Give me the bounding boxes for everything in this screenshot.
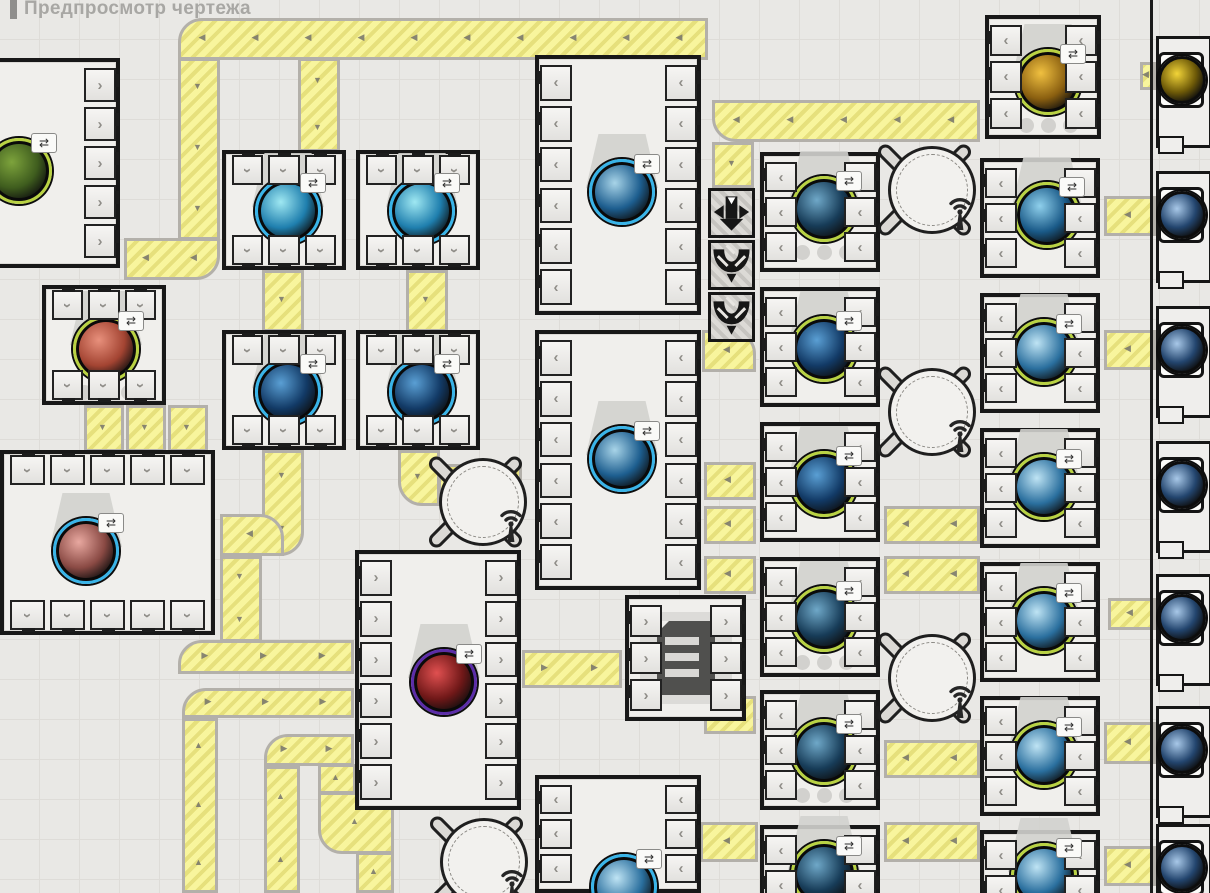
slot-tick [762, 776, 766, 789]
io-slot: ‹ [985, 642, 1017, 672]
belt-arrow-icon: ◀ [517, 33, 524, 42]
slot-tick [875, 338, 879, 351]
conveyor-belt: ◀ [704, 556, 756, 594]
slot-tick [448, 263, 461, 267]
belt-arrow-icon: ▶ [319, 697, 326, 706]
chevron-l-icon: ‹ [679, 432, 684, 447]
dot [795, 245, 810, 260]
chevron-l-icon: ‹ [554, 432, 559, 447]
chevron-l-icon: ‹ [779, 305, 784, 320]
dock-connector [1158, 406, 1184, 424]
belt-arrow-icon: ◀ [464, 33, 471, 42]
chevron-r-icon: › [644, 614, 649, 629]
io-slot: ‹ [1064, 473, 1096, 503]
chevron-r-icon: › [644, 651, 649, 666]
belt-arrow-icon: ◀ [733, 115, 740, 124]
chevron-d-icon: › [96, 383, 111, 388]
dot [817, 655, 832, 670]
slot-tick [982, 578, 986, 591]
building[interactable]: ⇄›››››››››››› [355, 550, 521, 810]
chevron-l-icon: ‹ [858, 610, 863, 625]
chevron-r-icon: › [98, 117, 103, 132]
slot-tick [627, 685, 631, 698]
io-slot: ‹ [765, 332, 797, 362]
belt-arrow-icon: ▲ [276, 792, 285, 801]
item-icon-blue-tower [1158, 594, 1206, 642]
slot-tick [762, 438, 766, 451]
belt-arrow-icon: ◀ [1124, 860, 1131, 869]
io-slot: ‹ [985, 168, 1017, 198]
blueprint-preview-canvas[interactable]: Предпросмотр чертежа ◀◀◀◀◀◀◀◀◀◀▼▼▼◀◀▼▼▼▼… [0, 0, 1210, 893]
radar-station[interactable] [882, 140, 982, 240]
io-slot: › [485, 723, 517, 759]
slot-tick [537, 550, 541, 563]
radar-station[interactable] [434, 812, 534, 893]
slot-tick [696, 469, 700, 482]
item-icon-blue-tower [1158, 844, 1206, 892]
io-slot: ‹ [765, 197, 797, 227]
swap-badge-icon: ⇄ [636, 849, 662, 869]
building[interactable]: ⇄‹‹‹‹‹‹ [535, 775, 701, 893]
io-slot: ‹ [844, 735, 876, 765]
conveyor-belt: ◀ [1140, 62, 1156, 90]
slot-tick [62, 453, 75, 457]
building[interactable]: ›››››› [625, 595, 746, 721]
swap-badge-icon: ⇄ [634, 421, 660, 441]
io-slot: › [50, 600, 85, 630]
slot-tick [762, 303, 766, 316]
io-slot: ‹ [665, 819, 697, 848]
radar-station[interactable] [882, 628, 982, 728]
io-slot: › [439, 235, 470, 265]
io-slot: › [402, 335, 433, 365]
chevron-l-icon: ‹ [679, 75, 684, 90]
radar-station[interactable] [433, 452, 533, 552]
io-slot: › [268, 415, 299, 445]
edge-dock-rail [1150, 0, 1153, 893]
io-slot: ‹ [990, 98, 1022, 129]
io-slot: › [710, 679, 742, 711]
slot-tick [314, 263, 327, 267]
belt-arrow-icon: ◀ [358, 33, 365, 42]
conveyor-belt: ▼ [168, 405, 208, 452]
chevron-r-icon: › [724, 651, 729, 666]
io-slot: › [52, 370, 83, 400]
io-slot: ‹ [540, 188, 572, 224]
chevron-l-icon: ‹ [679, 157, 684, 172]
chevron-l-icon: ‹ [779, 510, 784, 525]
chevron-l-icon: ‹ [779, 375, 784, 390]
chevron-l-icon: ‹ [1078, 246, 1083, 261]
chevron-d-icon: › [410, 168, 425, 173]
conveyor-belt: ◀◀ [884, 556, 980, 594]
io-slot: ‹ [765, 162, 797, 192]
io-slot: ‹ [844, 637, 876, 667]
io-slot: › [630, 642, 662, 674]
chevron-l-icon: ‹ [858, 340, 863, 355]
belt-arrow-icon: ▶ [201, 651, 208, 660]
conveyor-belt: ◀ [704, 462, 756, 500]
conveyor-belt: ▲▲▲ [182, 718, 218, 893]
io-slot: › [366, 235, 397, 265]
io-slot: ‹ [765, 735, 797, 765]
io-slot: › [90, 455, 125, 485]
slot-tick [314, 153, 327, 157]
io-slot: ‹ [665, 422, 697, 458]
belt-arrow-icon: ▶ [319, 651, 326, 660]
conveyor-belt: ▼▼ [220, 556, 262, 642]
swap-badge-icon: ⇄ [1056, 838, 1082, 858]
chevron-l-icon: ‹ [1078, 346, 1083, 361]
slot-tick [762, 203, 766, 216]
io-slot: ‹ [985, 840, 1017, 870]
building[interactable]: ⇄›››››› [356, 330, 480, 450]
io-slot: ‹ [665, 228, 697, 264]
building[interactable]: ⇄‹‹‹‹‹‹ [760, 825, 880, 893]
io-slot: › [402, 155, 433, 185]
io-slot: › [360, 601, 392, 637]
slot-tick [696, 275, 700, 288]
belt-arrow-icon: ▶ [205, 697, 212, 706]
chevron-d-icon: › [276, 348, 291, 353]
slot-tick [982, 747, 986, 760]
building[interactable]: ⇄‹‹‹‹‹‹ [980, 293, 1100, 413]
slot-tick [278, 443, 291, 447]
chevron-l-icon: ‹ [679, 198, 684, 213]
slot-tick [982, 174, 986, 187]
building[interactable]: ⇄‹‹‹‹‹‹ [980, 562, 1100, 682]
io-slot: ‹ [765, 567, 797, 597]
building[interactable]: ⇄‹‹‹‹‹‹ [760, 287, 880, 407]
io-slot: ‹ [844, 367, 876, 397]
chevron-l-icon: ‹ [679, 792, 684, 807]
io-slot: ‹ [540, 463, 572, 499]
chevron-l-icon: ‹ [999, 784, 1004, 799]
building[interactable]: ⇄‹‹‹‹‹‹ [980, 830, 1100, 893]
belt-arrow-icon: ▲ [194, 741, 203, 750]
slot-tick [376, 263, 389, 267]
chevron-l-icon: ‹ [679, 555, 684, 570]
chevron-l-icon: ‹ [679, 350, 684, 365]
io-slot: ‹ [665, 188, 697, 224]
conveyor-belt: ▼ [712, 142, 754, 188]
swap-badge-icon: ⇄ [300, 354, 326, 374]
belt-arrow-icon: ▼ [313, 123, 322, 132]
building[interactable]: ⇄‹‹‹‹‹‹ [980, 696, 1100, 816]
chevron-l-icon: ‹ [999, 615, 1004, 630]
io-slot: ‹ [990, 25, 1022, 56]
io-slot: ‹ [985, 572, 1017, 602]
chevron-l-icon: ‹ [779, 843, 784, 858]
slot-tick [982, 846, 986, 859]
slot-tick [762, 706, 766, 719]
building[interactable]: ⇄›››››› [222, 150, 346, 270]
slot-tick [115, 113, 119, 126]
chevron-l-icon: ‹ [1004, 106, 1009, 121]
io-slot: ‹ [765, 700, 797, 730]
chevron-l-icon: ‹ [679, 391, 684, 406]
io-slot: ‹ [765, 835, 797, 865]
io-slot: › [170, 455, 205, 485]
swap-badge-icon: ⇄ [836, 311, 862, 331]
chevron-l-icon: ‹ [779, 610, 784, 625]
io-slot: › [125, 370, 156, 400]
slot-tick [134, 288, 147, 292]
slot-tick [357, 729, 361, 742]
building[interactable]: ⇄‹‹‹‹‹‹ [760, 690, 880, 810]
conveyor-belt: ◀ [220, 514, 284, 556]
belt-arrow-icon: ◀ [902, 836, 909, 845]
swap-badge-icon: ⇄ [1056, 314, 1082, 334]
chevron-l-icon: ‹ [1078, 883, 1083, 893]
io-slot: › [170, 600, 205, 630]
slot-tick [242, 153, 255, 157]
io-slot: ‹ [985, 238, 1017, 268]
chevron-l-icon: ‹ [999, 346, 1004, 361]
tunnel-tile[interactable] [708, 292, 755, 342]
belt-arrow-icon: ▼ [727, 159, 736, 168]
belt-arrow-icon: ▼ [193, 204, 202, 213]
building[interactable]: ⇄‹‹‹‹‹‹ [760, 152, 880, 272]
chevron-d-icon: › [20, 613, 35, 618]
slot-tick [115, 230, 119, 243]
chevron-l-icon: ‹ [999, 381, 1004, 396]
io-slot: ‹ [665, 463, 697, 499]
building[interactable]: ⇄‹‹‹‹‹‹ [760, 557, 880, 677]
io-slot: ‹ [844, 602, 876, 632]
conveyor-belt: ◀ [1104, 722, 1156, 764]
slot-tick [762, 643, 766, 656]
slot-tick [696, 428, 700, 441]
io-slot: › [10, 600, 45, 630]
slot-tick [537, 112, 541, 125]
io-slot: › [366, 415, 397, 445]
chevron-l-icon: ‹ [999, 516, 1004, 531]
chevron-r-icon: › [724, 688, 729, 703]
conveyor-belt: ▼▼ [298, 58, 340, 152]
slot-tick [875, 608, 879, 621]
chevron-d-icon: › [96, 303, 111, 308]
slot-tick [242, 263, 255, 267]
chevron-d-icon: › [374, 428, 389, 433]
slot-tick [982, 712, 986, 725]
slot-tick [696, 71, 700, 84]
slot-tick [448, 443, 461, 447]
chevron-r-icon: › [644, 688, 649, 703]
chevron-d-icon: › [374, 168, 389, 173]
belt-arrow-icon: ▲ [350, 817, 359, 826]
title-accent-bar [10, 0, 17, 19]
conveyor-belt: ▶▶▶ [178, 640, 354, 674]
splitter-tile[interactable] [708, 188, 755, 238]
chevron-r-icon: › [499, 693, 504, 708]
chevron-l-icon: ‹ [1004, 33, 1009, 48]
slot-tick [376, 443, 389, 447]
radar-station[interactable] [882, 362, 982, 462]
io-slot: ‹ [540, 147, 572, 183]
swap-badge-icon: ⇄ [1056, 583, 1082, 603]
io-slot: › [130, 455, 165, 485]
building[interactable]: ⇄‹‹‹‹‹‹ [980, 428, 1100, 548]
belt-arrow-icon: ◀ [190, 253, 197, 262]
chevron-l-icon: ‹ [679, 280, 684, 295]
slot-tick [516, 770, 520, 783]
chevron-r-icon: › [98, 156, 103, 171]
building[interactable]: ⇄›››››› [42, 285, 166, 405]
io-slot: ‹ [765, 467, 797, 497]
io-slot: ‹ [665, 381, 697, 417]
swap-badge-icon: ⇄ [118, 311, 144, 331]
io-slot: › [232, 415, 263, 445]
conveyor-belt: ◀◀ [124, 238, 220, 280]
slot-tick [762, 338, 766, 351]
chevron-r-icon: › [499, 734, 504, 749]
chevron-r-icon: › [98, 195, 103, 210]
chevron-d-icon: › [374, 348, 389, 353]
chevron-l-icon: ‹ [679, 473, 684, 488]
io-slot: ‹ [765, 602, 797, 632]
antenna-icon [938, 680, 982, 724]
swap-badge-icon: ⇄ [434, 354, 460, 374]
belt-arrow-icon: ◀ [1124, 210, 1131, 219]
chevron-l-icon: ‹ [1078, 749, 1083, 764]
slot-tick [982, 648, 986, 661]
page-title: Предпросмотр чертежа [10, 0, 251, 20]
dot [817, 788, 832, 803]
io-slot: ‹ [1065, 61, 1097, 92]
slot-tick [537, 469, 541, 482]
slot-tick [1095, 881, 1099, 893]
chevron-l-icon: ‹ [779, 440, 784, 455]
slot-tick [98, 398, 111, 402]
chevron-l-icon: ‹ [779, 778, 784, 793]
io-slot: ‹ [540, 544, 572, 580]
slot-tick [1095, 613, 1099, 626]
tunnel-curve-icon [711, 295, 752, 339]
io-slot: ‹ [765, 637, 797, 667]
belt-arrow-icon: ▼ [193, 82, 202, 91]
io-slot: › [485, 560, 517, 596]
chevron-d-icon: › [60, 468, 75, 473]
slot-tick [314, 443, 327, 447]
slot-tick [115, 152, 119, 165]
belt-arrow-icon: ◀ [902, 569, 909, 578]
slot-tick [875, 303, 879, 316]
slot-tick [62, 288, 75, 292]
chevron-l-icon: ‹ [779, 743, 784, 758]
chevron-r-icon: › [499, 775, 504, 790]
io-slot: ‹ [1064, 741, 1096, 771]
swap-badge-icon: ⇄ [31, 133, 57, 153]
chevron-l-icon: ‹ [554, 861, 559, 876]
io-slot: › [88, 290, 119, 320]
io-slot: › [485, 642, 517, 678]
building[interactable]: ⇄››››› [0, 58, 120, 268]
io-slot: ‹ [985, 473, 1017, 503]
io-slot: › [710, 605, 742, 637]
slot-tick [982, 613, 986, 626]
building[interactable]: ⇄‹‹‹‹‹‹‹‹‹‹‹‹ [535, 55, 701, 315]
chevron-l-icon: ‹ [554, 514, 559, 529]
slot-tick [696, 550, 700, 563]
io-slot: › [710, 642, 742, 674]
io-slot: ‹ [1064, 238, 1096, 268]
io-slot: ‹ [1064, 508, 1096, 538]
belt-arrow-icon: ◀ [1124, 344, 1131, 353]
belt-arrow-icon: ▼ [277, 471, 286, 480]
slot-tick [516, 689, 520, 702]
swap-badge-icon: ⇄ [300, 173, 326, 193]
chevron-l-icon: ‹ [999, 211, 1004, 226]
belt-arrow-icon: ▶ [591, 663, 598, 672]
tunnel-tile[interactable] [708, 240, 755, 290]
building[interactable]: ⇄‹‹‹‹‹‹‹‹‹‹‹‹ [535, 330, 701, 590]
chevron-l-icon: ‹ [858, 878, 863, 893]
io-slot: ‹ [844, 467, 876, 497]
building[interactable]: ⇄‹‹‹‹‹‹ [760, 422, 880, 542]
building[interactable]: ⇄›››››› [356, 150, 480, 270]
chevron-l-icon: ‹ [1078, 211, 1083, 226]
io-slot: ‹ [665, 503, 697, 539]
chevron-l-icon: ‹ [554, 826, 559, 841]
belt-arrow-icon: ◀ [902, 753, 909, 762]
io-slot: › [52, 290, 83, 320]
io-slot: ‹ [844, 502, 876, 532]
chevron-l-icon: ‹ [554, 350, 559, 365]
item-icon-blue-tower [1158, 326, 1206, 374]
chevron-l-icon: ‹ [779, 340, 784, 355]
slot-tick [1096, 67, 1100, 80]
belt-arrow-icon: ◀ [950, 836, 957, 845]
building[interactable]: ⇄›››››››››› [0, 450, 215, 635]
belt-arrow-icon: ▲ [276, 855, 285, 864]
chevron-d-icon: › [447, 348, 462, 353]
building[interactable]: ⇄‹‹‹‹‹‹ [985, 15, 1101, 139]
belt-arrow-icon: ◀ [724, 569, 731, 578]
chevron-l-icon: ‹ [1079, 69, 1084, 84]
slot-tick [537, 428, 541, 441]
item-icon-yellow-flowers [1158, 56, 1206, 104]
io-slot: ‹ [765, 502, 797, 532]
building[interactable]: ⇄‹‹‹‹‹‹ [980, 158, 1100, 278]
chevron-l-icon: ‹ [554, 391, 559, 406]
belt-arrow-icon: ◀ [724, 475, 731, 484]
io-slot: › [84, 185, 116, 219]
building[interactable]: ⇄›››››› [222, 330, 346, 450]
io-slot: ‹ [540, 228, 572, 264]
io-slot: › [485, 683, 517, 719]
io-slot: ‹ [765, 432, 797, 462]
io-slot: ‹ [1064, 373, 1096, 403]
io-slot: › [84, 146, 116, 180]
factory-map: ◀◀◀◀◀◀◀◀◀◀▼▼▼◀◀▼▼▼▼▼▼▼▼▼◀▼▼▼▶▶▶▶▶▶▶▶▲▲▲▶… [0, 0, 1210, 893]
chevron-l-icon: ‹ [679, 514, 684, 529]
io-slot: › [366, 155, 397, 185]
belt-arrow-icon: ◀ [570, 33, 577, 42]
chevron-d-icon: › [313, 248, 328, 253]
io-slot: ‹ [1064, 607, 1096, 637]
dock-connector [1158, 541, 1184, 559]
io-slot: ‹ [540, 854, 572, 883]
slot-tick [762, 473, 766, 486]
chevron-l-icon: ‹ [679, 116, 684, 131]
slot-tick [696, 791, 700, 804]
belt-arrow-icon: ◀ [1126, 608, 1133, 617]
io-slot: ‹ [985, 373, 1017, 403]
slot-tick [982, 444, 986, 457]
swap-badge-icon: ⇄ [836, 836, 862, 856]
chevron-d-icon: › [374, 248, 389, 253]
